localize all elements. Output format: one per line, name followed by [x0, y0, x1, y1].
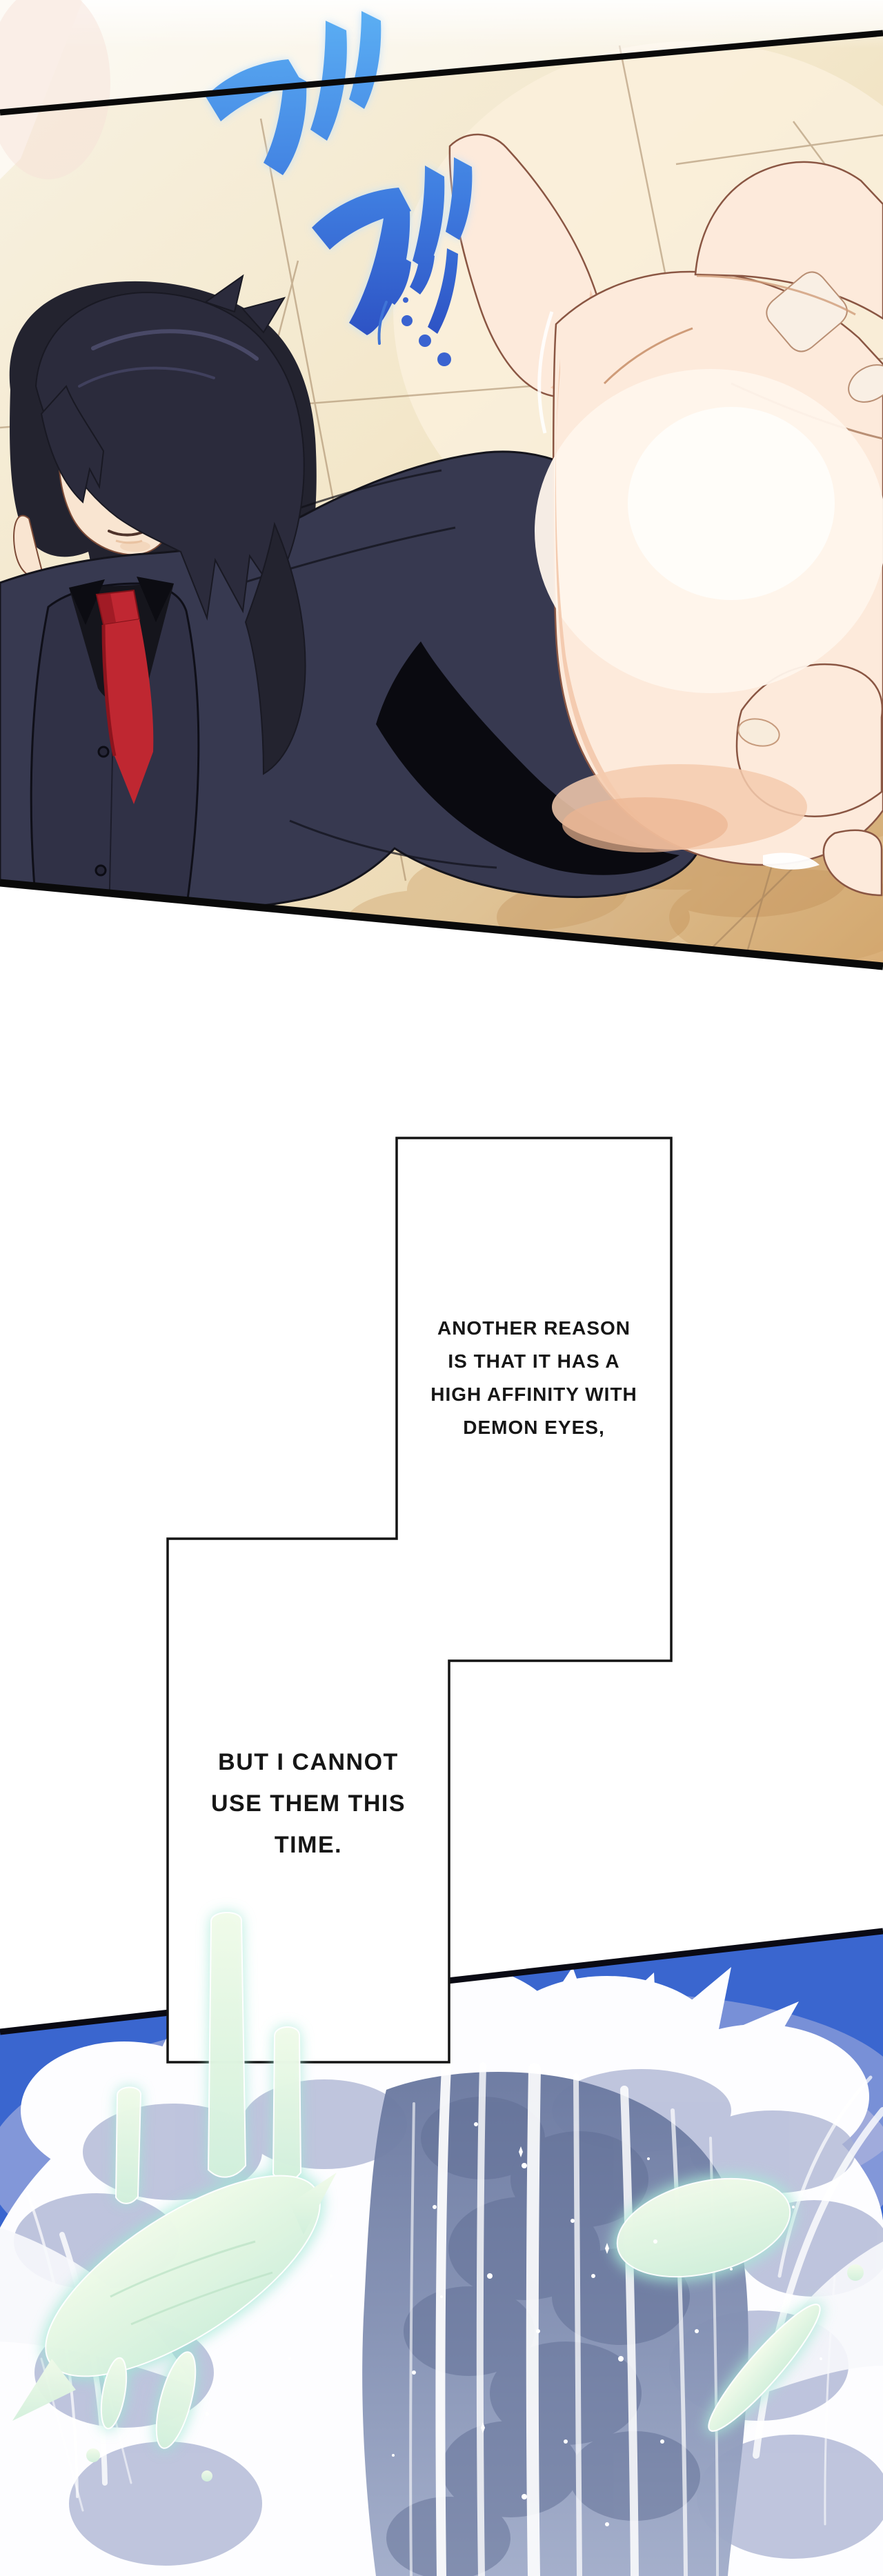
- shard-small: [116, 2087, 141, 2203]
- palm-highlight-core: [628, 407, 835, 600]
- narration-line: BUT I CANNOT: [168, 1741, 449, 1783]
- narration-line: DEMON EYES,: [397, 1411, 671, 1444]
- vest-button: [96, 866, 106, 875]
- shard-tall: [208, 1913, 246, 2177]
- narration-line: ANOTHER REASON: [397, 1312, 671, 1345]
- narration-line: HIGH AFFINITY WITH: [397, 1378, 671, 1411]
- page-artwork: [0, 0, 883, 2576]
- narration-line: USE THEM THIS: [168, 1783, 449, 1824]
- top-fade: [0, 0, 883, 48]
- narration-box: [168, 1138, 671, 2062]
- palm-bottom-shade-deep: [562, 797, 728, 852]
- narration-line: TIME.: [168, 1824, 449, 1866]
- action-panel: [0, 0, 883, 969]
- vest-button: [99, 747, 108, 757]
- shard-mid: [273, 2027, 301, 2181]
- narration-text-1: ANOTHER REASON IS THAT IT HAS A HIGH AFF…: [397, 1312, 671, 1444]
- manga-page: ANOTHER REASON IS THAT IT HAS A HIGH AFF…: [0, 0, 883, 2576]
- narration-line: IS THAT IT HAS A: [397, 1345, 671, 1378]
- narration-text-2: BUT I CANNOT USE THEM THIS TIME.: [168, 1741, 449, 1866]
